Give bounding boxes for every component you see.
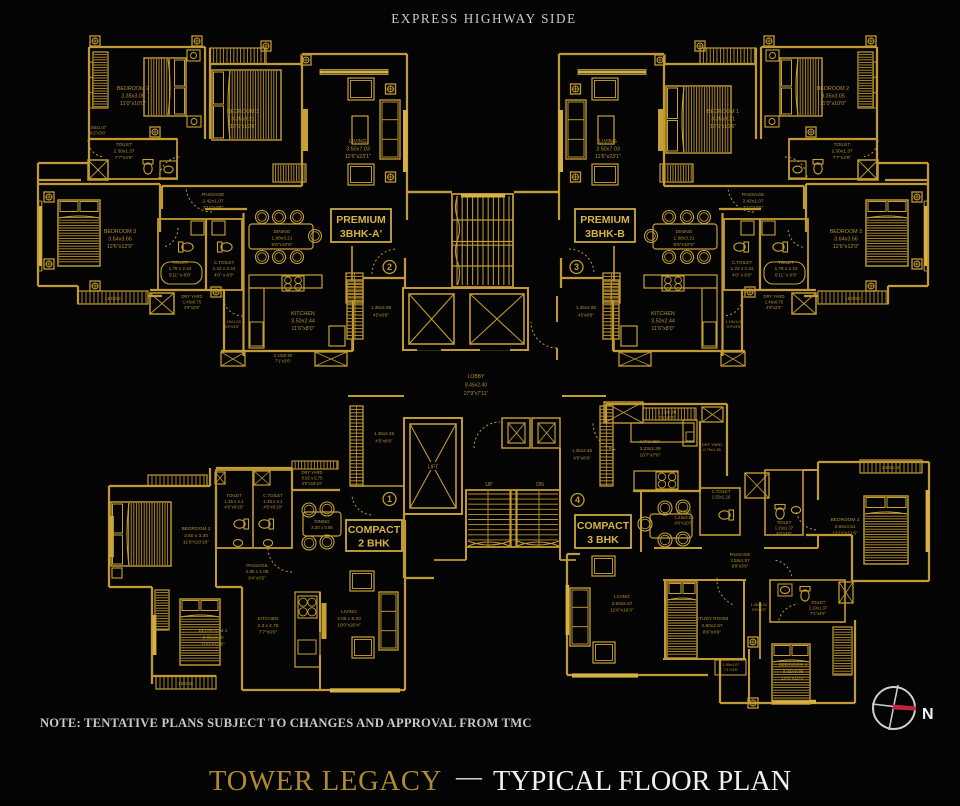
svg-text:3.50x7.03: 3.50x7.03	[346, 146, 370, 152]
svg-text:19'2"x3'6": 19'2"x3'6"	[88, 130, 107, 135]
svg-text:7'7"x4'6": 7'7"x4'6"	[833, 155, 852, 161]
svg-text:12'6"x12'0": 12'6"x12'0"	[833, 244, 860, 250]
svg-text:27'9"x7'11": 27'9"x7'11"	[464, 391, 488, 397]
svg-text:7'1"x3'0": 7'1"x3'0"	[659, 415, 675, 420]
svg-text:0.75x1.35: 0.75x1.35	[703, 447, 721, 452]
svg-text:4'5"x8'0": 4'5"x8'0"	[573, 456, 591, 461]
svg-text:5'11" x 8'0": 5'11" x 8'0"	[775, 272, 798, 277]
svg-text:3.21x3.05: 3.21x3.05	[782, 669, 803, 675]
svg-text:BEDROOM 2: BEDROOM 2	[182, 526, 211, 532]
svg-text:PASSAGE: PASSAGE	[202, 192, 225, 198]
svg-text:DN: DN	[536, 482, 544, 488]
svg-text:7'1"x3'6": 7'1"x3'6"	[724, 668, 739, 672]
svg-text:EXPRESS HIGHWAY SIDE: EXPRESS HIGHWAY SIDE	[391, 11, 577, 26]
svg-text:7'11"x3'6": 7'11"x3'6"	[203, 205, 224, 211]
svg-text:9'9"x3'6": 9'9"x3'6"	[732, 564, 749, 569]
svg-text:4'5"x8'0": 4'5"x8'0"	[375, 439, 393, 444]
svg-text:LIVING: LIVING	[349, 139, 367, 145]
svg-text:3'9"x3'5": 3'9"x3'5"	[726, 324, 742, 329]
svg-text:TOILET: TOILET	[778, 260, 794, 265]
svg-text:2.10x0.90: 2.10x0.90	[658, 410, 677, 415]
svg-text:LIFT: LIFT	[428, 465, 439, 471]
svg-text:10'0"x10'6": 10'0"x10'6"	[201, 642, 225, 648]
svg-text:11'6"x19'3": 11'6"x19'3"	[610, 608, 634, 614]
svg-text:1.98x3.21: 1.98x3.21	[271, 235, 292, 241]
svg-text:3.64x3.66: 3.64x3.66	[834, 236, 858, 242]
svg-text:2.30x1.37: 2.30x1.37	[831, 148, 852, 154]
svg-text:1.46x0.75: 1.46x0.75	[183, 300, 202, 305]
svg-text:1.23x3.05: 1.23x3.05	[674, 515, 694, 520]
svg-text:1.35x2.45: 1.35x2.45	[374, 431, 395, 436]
svg-text:BEDROOM 2: BEDROOM 2	[117, 86, 149, 92]
svg-text:11'0"x10'0": 11'0"x10'0"	[120, 101, 146, 107]
svg-text:COMPACT: COMPACT	[348, 524, 401, 536]
svg-text:BEDROOM 3: BEDROOM 3	[104, 229, 136, 235]
svg-text:8.45x2.40: 8.45x2.40	[465, 383, 487, 389]
svg-text:45'x8'6": 45'x8'6"	[373, 313, 389, 318]
svg-text:2: 2	[387, 262, 392, 272]
svg-text:TOILET: TOILET	[226, 493, 242, 498]
svg-text:TOILET: TOILET	[834, 142, 851, 148]
svg-text:2.30x1.37: 2.30x1.37	[113, 148, 134, 154]
svg-text:LOBBY: LOBBY	[468, 374, 485, 380]
svg-text:12'11"x11'6": 12'11"x11'6"	[832, 531, 858, 537]
svg-text:C.TOILET: C.TOILET	[712, 489, 731, 494]
svg-text:1.35x2.80: 1.35x2.80	[576, 305, 597, 310]
svg-text:UP: UP	[485, 482, 493, 488]
svg-text:BEDROOM 1: BEDROOM 1	[779, 662, 808, 668]
svg-text:BEDROOM 2: BEDROOM 2	[817, 86, 849, 92]
svg-text:3BHK-A': 3BHK-A'	[340, 228, 382, 240]
svg-text:4'0"x10'0": 4'0"x10'0"	[674, 521, 694, 526]
svg-text:2.42x1.07: 2.42x1.07	[202, 198, 223, 204]
svg-text:2.42x1.07: 2.42x1.07	[742, 198, 763, 204]
svg-text:7'1"x3'0": 7'1"x3'0"	[275, 358, 291, 363]
svg-text:3.50 x 3.30: 3.50 x 3.30	[184, 533, 208, 539]
svg-text:BEDROOM 2: BEDROOM 2	[831, 517, 860, 523]
svg-text:C.TOILET: C.TOILET	[732, 260, 753, 265]
svg-text:7'1"x4'6": 7'1"x4'6"	[810, 611, 826, 616]
svg-text:1.35 x 2.1: 1.35 x 2.1	[224, 499, 244, 504]
svg-text:10'7"x7'6": 10'7"x7'6"	[640, 453, 661, 459]
svg-text:0.92 x 5.75: 0.92 x 5.75	[302, 475, 323, 480]
svg-text:KITCHEN: KITCHEN	[639, 439, 661, 445]
svg-text:3'9"x3'5": 3'9"x3'5"	[224, 324, 240, 329]
svg-text:7'11"x3'6": 7'11"x3'6"	[743, 205, 764, 211]
svg-text:LIVING: LIVING	[614, 594, 630, 600]
svg-text:1.22 x 2.44: 1.22 x 2.44	[731, 266, 754, 271]
svg-text:1.22 x 2.44: 1.22 x 2.44	[213, 266, 236, 271]
svg-text:8'6"x8'9": 8'6"x8'9"	[703, 630, 722, 636]
svg-text:4'0" x 8'0": 4'0" x 8'0"	[214, 272, 234, 277]
svg-text:7'7"x4'6": 7'7"x4'6"	[115, 155, 134, 161]
svg-text:KITCHEN: KITCHEN	[651, 311, 675, 317]
svg-text:2.10x0.90: 2.10x0.90	[274, 353, 293, 358]
svg-text:3.58x1.07: 3.58x1.07	[730, 558, 750, 563]
svg-text:11'6"x8'0": 11'6"x8'0"	[651, 326, 674, 332]
svg-text:TOILET: TOILET	[172, 260, 188, 265]
svg-text:DINING: DINING	[314, 519, 330, 524]
svg-text:TOILET: TOILET	[777, 520, 792, 525]
svg-text:3.35x3.21: 3.35x3.21	[711, 116, 735, 122]
svg-text:BEDROOM 3: BEDROOM 3	[830, 229, 862, 235]
svg-text:1.06x1.92: 1.06x1.92	[751, 603, 768, 607]
svg-text:C.TOILET: C.TOILET	[214, 260, 235, 265]
svg-text:LEDGE: LEDGE	[105, 296, 121, 301]
svg-text:KITCHEN: KITCHEN	[257, 616, 279, 622]
svg-text:TOILET: TOILET	[116, 142, 133, 148]
svg-text:DRY YARD: DRY YARD	[301, 470, 322, 475]
svg-text:PREMIUM: PREMIUM	[580, 214, 630, 226]
svg-text:—: —	[455, 762, 483, 791]
svg-text:3.50x7.03: 3.50x7.03	[596, 146, 620, 152]
svg-text:4: 4	[575, 495, 580, 505]
svg-text:PASSAGE: PASSAGE	[742, 192, 765, 198]
svg-text:TOILET: TOILET	[811, 600, 826, 605]
svg-text:TOWER LEGACY: TOWER LEGACY	[209, 766, 442, 797]
svg-text:1.95x1.07: 1.95x1.07	[723, 663, 740, 667]
svg-text:BEDROOM 1: BEDROOM 1	[707, 109, 739, 115]
svg-text:LIVING: LIVING	[599, 139, 617, 145]
svg-text:NOTE: TENTATIVE PLANS SUBJECT: NOTE: TENTATIVE PLANS SUBJECT TO CHANGES…	[40, 716, 532, 730]
svg-text:COMPACT: COMPACT	[577, 520, 630, 532]
svg-text:2.10x1.37: 2.10x1.37	[809, 606, 828, 611]
svg-text:10'8"x10'0": 10'8"x10'0"	[781, 676, 805, 682]
svg-text:3.23x2.29: 3.23x2.29	[639, 446, 660, 452]
svg-text:1.35x2.45: 1.35x2.45	[572, 448, 593, 453]
svg-text:5.86x1.07: 5.86x1.07	[88, 125, 107, 130]
svg-text:3: 3	[574, 262, 579, 272]
svg-text:1: 1	[387, 494, 392, 504]
svg-text:3.50x2.44: 3.50x2.44	[291, 318, 315, 324]
svg-text:4'0" x 8'0": 4'0" x 8'0"	[732, 272, 752, 277]
svg-text:11'6"x10'10": 11'6"x10'10"	[183, 540, 209, 546]
svg-text:1.35x2.59: 1.35x2.59	[371, 305, 392, 310]
svg-text:11'0"x10'0": 11'0"x10'0"	[820, 101, 846, 107]
svg-text:3.50x2.44: 3.50x2.44	[651, 318, 675, 324]
svg-text:4'9"x2'6": 4'9"x2'6"	[766, 305, 782, 310]
svg-text:10'0"x20'4": 10'0"x20'4"	[337, 623, 361, 629]
svg-text:3.64x3.66: 3.64x3.66	[108, 236, 132, 242]
svg-text:3.06x3.20: 3.06x3.20	[202, 635, 223, 641]
svg-text:DINING: DINING	[274, 229, 291, 235]
svg-text:1.98x3.21: 1.98x3.21	[673, 235, 694, 241]
svg-text:PASSAGE: PASSAGE	[246, 563, 268, 568]
svg-text:STUDY ROOM: STUDY ROOM	[696, 616, 728, 622]
svg-text:1.78 x 2.44: 1.78 x 2.44	[169, 266, 192, 271]
svg-text:6'6"x10'6": 6'6"x10'6"	[674, 242, 695, 248]
svg-text:4'5"x6'10": 4'5"x6'10"	[224, 505, 244, 510]
svg-text:3.35x3.05: 3.35x3.05	[821, 93, 845, 99]
svg-text:KITCHEN: KITCHEN	[291, 311, 315, 317]
svg-text:LEDGE: LEDGE	[845, 296, 861, 301]
svg-text:1.50x0.45: 1.50x0.45	[882, 465, 901, 470]
svg-text:3.94x3.51: 3.94x3.51	[834, 524, 855, 530]
svg-text:3.35x3.05: 3.35x3.05	[121, 93, 145, 99]
svg-text:6'6"x10'6": 6'6"x10'6"	[272, 242, 293, 248]
svg-text:1.35 x 2.1: 1.35 x 2.1	[263, 499, 283, 504]
svg-text:2 BHK: 2 BHK	[358, 537, 390, 549]
svg-text:11'6"x23'1": 11'6"x23'1"	[595, 154, 621, 160]
svg-text:BEDROOM 1: BEDROOM 1	[227, 109, 259, 115]
svg-text:DRY YARD: DRY YARD	[181, 294, 202, 299]
svg-text:5'11" x 8'0": 5'11" x 8'0"	[169, 272, 192, 277]
svg-text:C.TOILET: C.TOILET	[263, 493, 283, 498]
svg-text:TYPICAL FLOOR PLAN: TYPICAL FLOOR PLAN	[493, 766, 791, 797]
svg-text:DINING: DINING	[676, 509, 692, 514]
svg-text:3'0"x18'10": 3'0"x18'10"	[302, 481, 323, 486]
svg-text:3BHK-B: 3BHK-B	[585, 228, 625, 240]
svg-text:11'6"x8'0": 11'6"x8'0"	[291, 326, 314, 332]
svg-text:3.35x3.21: 3.35x3.21	[231, 116, 255, 122]
svg-text:2.85 x 1.05: 2.85 x 1.05	[246, 569, 269, 574]
svg-text:1.78 x 2.44: 1.78 x 2.44	[775, 266, 798, 271]
svg-text:1.20x1.37: 1.20x1.37	[775, 526, 794, 531]
svg-text:11'6"x23'1": 11'6"x23'1"	[345, 154, 371, 160]
svg-text:10'6"x10'6": 10'6"x10'6"	[710, 124, 737, 130]
svg-text:BEDROOM 1: BEDROOM 1	[199, 628, 228, 634]
svg-text:4'0"x4'6": 4'0"x4'6"	[776, 531, 792, 536]
svg-text:N: N	[922, 706, 934, 723]
svg-text:10'6"x10'6": 10'6"x10'6"	[230, 124, 257, 130]
svg-text:4'9"x2'6": 4'9"x2'6"	[184, 305, 200, 310]
svg-text:2.3 x 2.75: 2.3 x 2.75	[257, 623, 278, 629]
svg-text:1.46x0.75: 1.46x0.75	[765, 300, 784, 305]
svg-text:12'6"x12'0": 12'6"x12'0"	[107, 244, 134, 250]
svg-text:7'7"x9'0": 7'7"x9'0"	[259, 630, 278, 636]
svg-text:3.30 x 0.85: 3.30 x 0.85	[311, 525, 333, 530]
svg-text:3.05 x 6.20: 3.05 x 6.20	[337, 616, 361, 622]
svg-text:LEDGE: LEDGE	[179, 681, 194, 686]
svg-text:9'4"x3'5": 9'4"x3'5"	[248, 575, 266, 580]
svg-text:3.50x5.87: 3.50x5.87	[611, 601, 632, 607]
svg-text:2.60x2.67: 2.60x2.67	[701, 623, 722, 629]
svg-text:DRY YARD: DRY YARD	[763, 294, 784, 299]
svg-text:45'x8'6": 45'x8'6"	[578, 313, 594, 318]
svg-text:3 BHK: 3 BHK	[587, 534, 619, 546]
svg-text:4'5"x6'10": 4'5"x6'10"	[263, 505, 283, 510]
svg-text:DINING: DINING	[676, 229, 693, 235]
svg-text:PASSAGE: PASSAGE	[730, 552, 751, 557]
svg-text:PREMIUM: PREMIUM	[336, 214, 386, 226]
svg-text:LIVING: LIVING	[341, 609, 357, 615]
svg-text:1.55x2.29: 1.55x2.29	[712, 495, 731, 500]
